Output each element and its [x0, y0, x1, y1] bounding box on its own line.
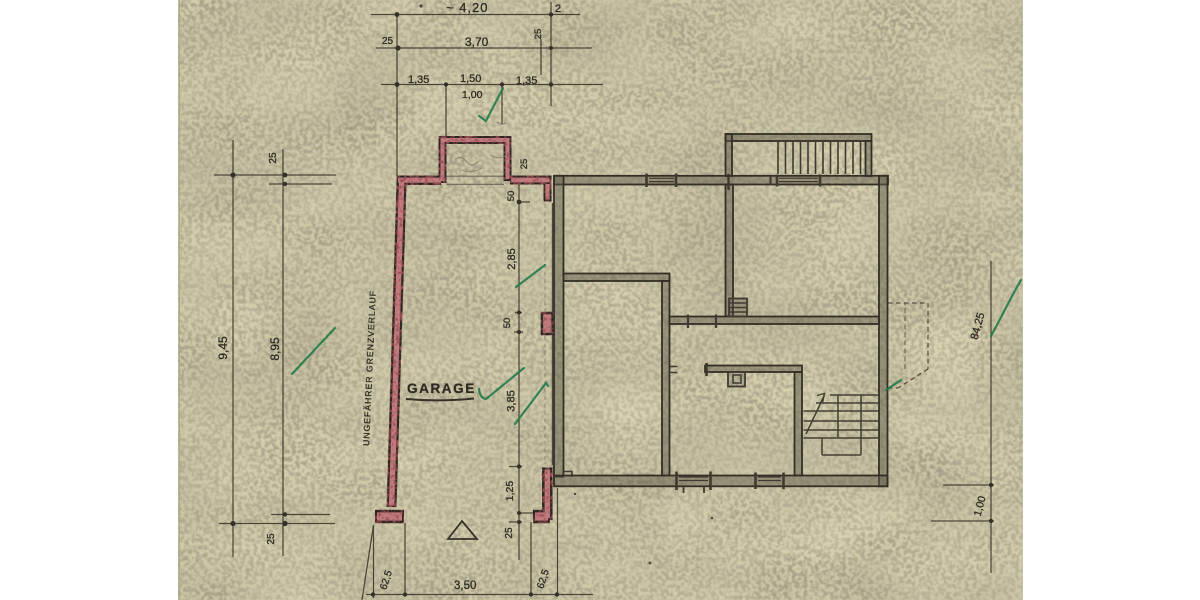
svg-text:GARAGE: GARAGE — [407, 381, 476, 396]
svg-text:25: 25 — [504, 527, 515, 539]
svg-text:2: 2 — [555, 3, 561, 15]
svg-text:1,50: 1,50 — [460, 73, 481, 85]
svg-text:1,00: 1,00 — [462, 89, 483, 101]
svg-text:25: 25 — [268, 152, 279, 164]
svg-text:25: 25 — [382, 36, 394, 47]
svg-text:1,25: 1,25 — [504, 481, 516, 502]
svg-text:~ 4,20: ~ 4,20 — [446, 0, 489, 15]
svg-text:8,95: 8,95 — [268, 337, 282, 361]
svg-text:3,70: 3,70 — [465, 35, 489, 49]
svg-text:25: 25 — [533, 29, 544, 40]
svg-text:3,85: 3,85 — [506, 390, 518, 411]
svg-text:50: 50 — [506, 191, 517, 202]
svg-text:3,50: 3,50 — [454, 580, 476, 592]
svg-text:9,45: 9,45 — [216, 336, 230, 360]
svg-text:2,85: 2,85 — [506, 248, 518, 269]
svg-text:25: 25 — [519, 159, 530, 170]
svg-text:25: 25 — [266, 533, 277, 545]
svg-text:1,35: 1,35 — [516, 75, 537, 87]
svg-text:1,35: 1,35 — [408, 74, 429, 86]
svg-text:50: 50 — [502, 318, 513, 329]
